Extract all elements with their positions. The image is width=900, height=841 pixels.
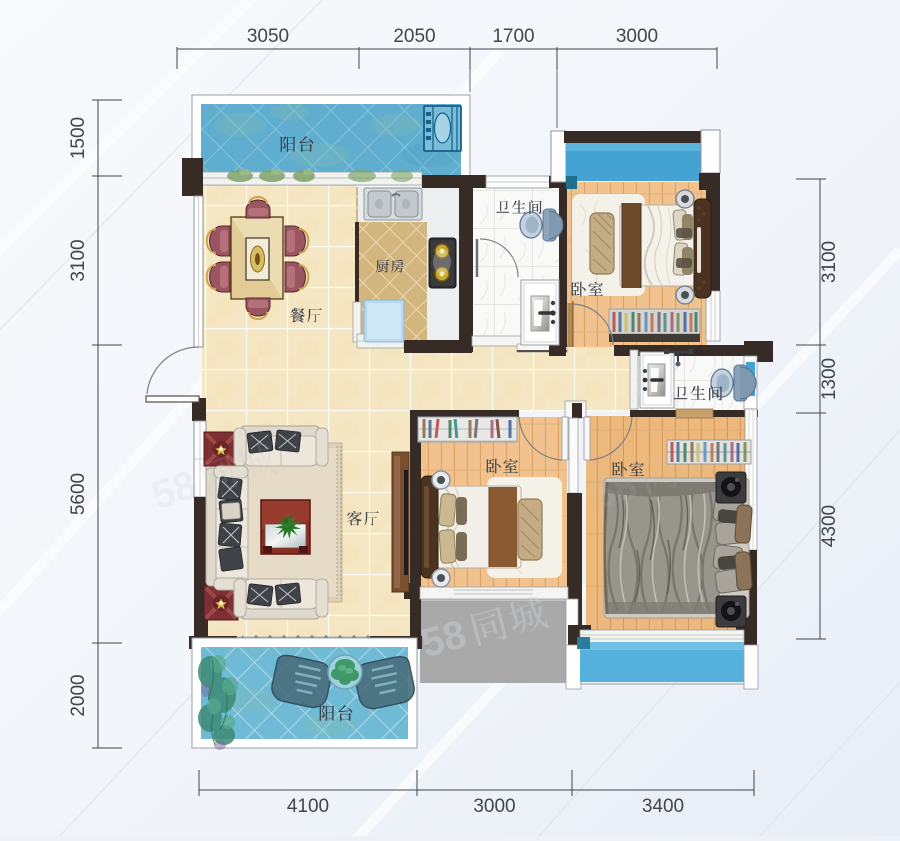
svg-text:4300: 4300 [819,505,840,547]
svg-text:1300: 1300 [819,358,840,400]
svg-text:3100: 3100 [819,241,840,283]
svg-text:2050: 2050 [393,26,435,47]
svg-text:3000: 3000 [616,26,658,47]
svg-text:3400: 3400 [642,796,684,817]
svg-text:3100: 3100 [68,239,89,281]
svg-text:1700: 1700 [492,26,534,47]
svg-text:1500: 1500 [68,117,89,159]
svg-text:2000: 2000 [68,674,89,716]
svg-text:3000: 3000 [473,796,515,817]
svg-text:4100: 4100 [287,796,329,817]
svg-text:5600: 5600 [68,473,89,515]
svg-text:3050: 3050 [247,26,289,47]
